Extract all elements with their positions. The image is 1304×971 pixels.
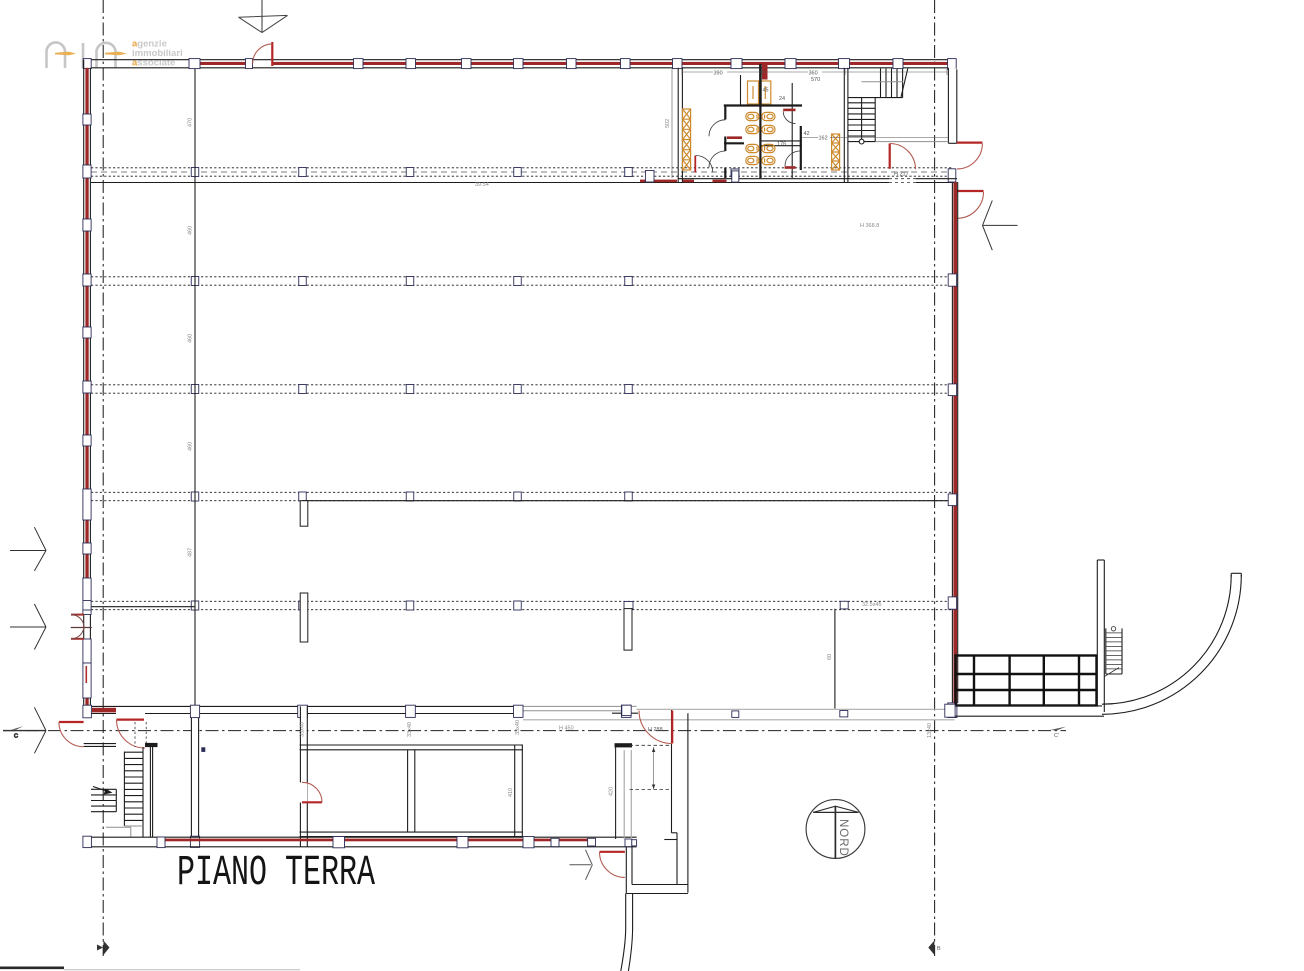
- svg-text:33x40: 33x40: [515, 720, 521, 735]
- svg-text:502: 502: [665, 119, 671, 128]
- svg-text:176: 176: [777, 142, 786, 148]
- svg-text:33x40: 33x40: [407, 722, 413, 737]
- svg-text:60: 60: [827, 654, 833, 660]
- svg-text:460: 460: [188, 226, 194, 235]
- svg-text:460: 460: [188, 334, 194, 343]
- svg-text:NORD: NORD: [837, 819, 849, 857]
- svg-text:420: 420: [609, 787, 615, 796]
- svg-text:460: 460: [188, 442, 194, 451]
- svg-text:H 217: H 217: [894, 172, 909, 178]
- svg-text:410: 410: [508, 788, 514, 797]
- svg-text:42: 42: [804, 131, 810, 137]
- svg-text:B: B: [937, 946, 941, 952]
- svg-text:390: 390: [714, 71, 723, 77]
- svg-text:33x40: 33x40: [300, 722, 306, 737]
- svg-text:162: 162: [819, 136, 828, 142]
- svg-text:PIANO TERRA: PIANO TERRA: [177, 849, 376, 898]
- svg-text:360: 360: [809, 71, 818, 77]
- svg-text:C: C: [14, 734, 18, 740]
- svg-text:H 450: H 450: [559, 726, 574, 732]
- svg-text:H 288: H 288: [648, 727, 663, 733]
- svg-text:487: 487: [188, 548, 194, 557]
- svg-text:13x40: 13x40: [927, 723, 933, 738]
- svg-text:45: 45: [763, 88, 769, 94]
- svg-text:470: 470: [188, 118, 194, 127]
- svg-text:C': C': [1054, 733, 1059, 739]
- svg-text:39.54: 39.54: [475, 182, 489, 188]
- svg-text:570: 570: [811, 77, 820, 83]
- svg-text:24: 24: [779, 96, 785, 102]
- svg-text:H 368.8: H 368.8: [860, 223, 879, 229]
- svg-text:32.5x45: 32.5x45: [862, 602, 882, 608]
